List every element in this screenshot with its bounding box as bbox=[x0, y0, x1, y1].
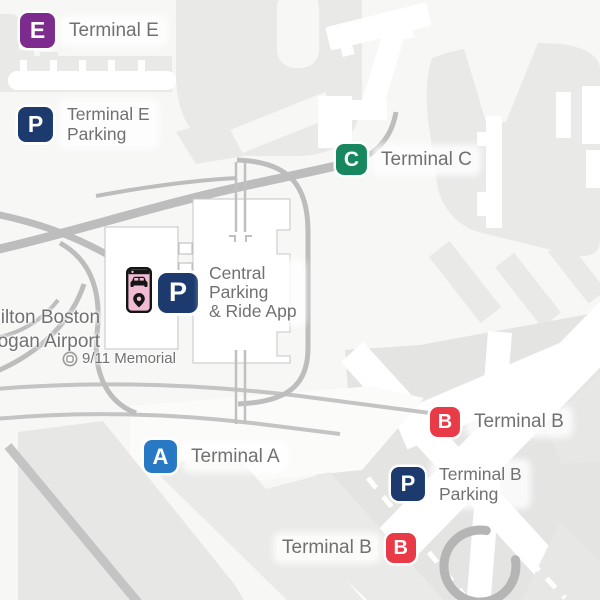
label-line: Hilton Boston bbox=[0, 306, 100, 330]
label-line: & Ride App bbox=[209, 302, 297, 321]
ride-app-phone-icon bbox=[126, 267, 152, 318]
terminal-b-upper-badge: B bbox=[430, 407, 460, 437]
central-parking-marker[interactable]: P Central Parking & Ride App bbox=[126, 263, 302, 322]
label-line: Terminal E bbox=[67, 104, 150, 124]
terminal-e-badge: E bbox=[20, 13, 55, 48]
parking-icon: P bbox=[18, 107, 53, 142]
parking-icon: P bbox=[391, 467, 425, 501]
terminal-c-marker[interactable]: C Terminal C bbox=[336, 144, 477, 175]
label-line: Central bbox=[209, 264, 297, 283]
label-line: Terminal B bbox=[439, 464, 522, 484]
label-line: Parking bbox=[209, 283, 297, 302]
central-parking-label: Central Parking & Ride App bbox=[204, 263, 302, 322]
memorial-icon bbox=[62, 351, 78, 367]
terminal-e-marker[interactable]: E Terminal E bbox=[20, 13, 164, 48]
terminal-b-lower-marker[interactable]: Terminal B B bbox=[277, 533, 416, 563]
terminal-e-label: Terminal E bbox=[64, 19, 164, 43]
airport-map: E Terminal E P Terminal E Parking C Term… bbox=[0, 0, 600, 600]
terminal-b-lower-badge: B bbox=[386, 533, 416, 563]
terminal-b-upper-label: Terminal B bbox=[469, 410, 569, 434]
terminal-e-parking-marker[interactable]: P Terminal E Parking bbox=[18, 103, 155, 145]
terminal-b-parking-marker[interactable]: P Terminal B Parking bbox=[391, 463, 527, 505]
terminal-b-parking-label: Terminal B Parking bbox=[434, 463, 527, 505]
terminal-a-label: Terminal A bbox=[186, 445, 285, 469]
central-parking-icon: P bbox=[158, 273, 198, 313]
terminal-c-badge: C bbox=[336, 144, 367, 175]
label-line: Parking bbox=[439, 484, 522, 504]
memorial-marker[interactable]: 9/11 Memorial bbox=[62, 350, 176, 367]
terminal-a-marker[interactable]: A Terminal A bbox=[144, 440, 285, 473]
terminal-b-upper-marker[interactable]: B Terminal B bbox=[430, 407, 569, 437]
terminal-c-label: Terminal C bbox=[376, 148, 477, 172]
terminal-b-lower-label: Terminal B bbox=[277, 536, 377, 560]
hotel-label: Hilton Boston Logan Airport bbox=[0, 306, 100, 354]
terminal-a-badge: A bbox=[144, 440, 177, 473]
terminal-e-parking-label: Terminal E Parking bbox=[62, 103, 155, 145]
memorial-label: 9/11 Memorial bbox=[82, 350, 176, 367]
label-line: Parking bbox=[67, 124, 150, 144]
